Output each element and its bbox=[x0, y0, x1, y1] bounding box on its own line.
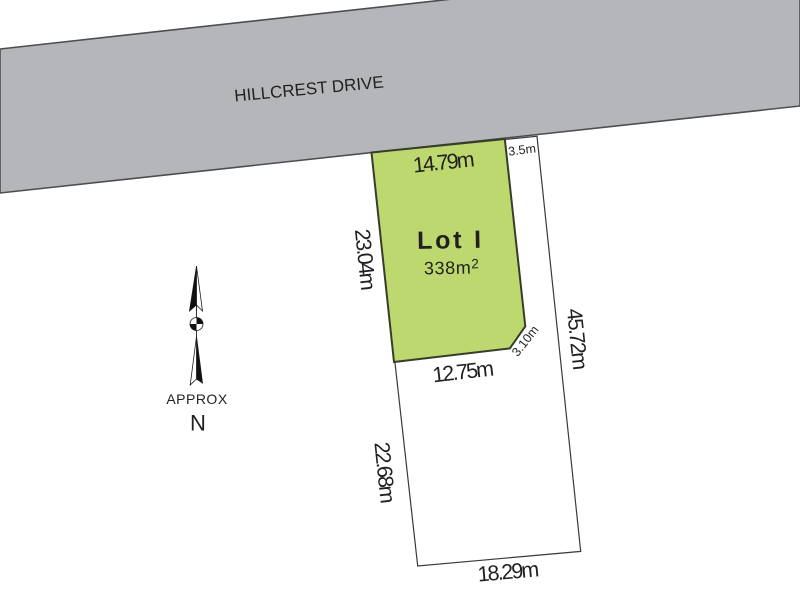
svg-text:N: N bbox=[190, 411, 206, 436]
svg-text:338m2: 338m2 bbox=[424, 256, 480, 278]
svg-text:Lot I: Lot I bbox=[417, 226, 484, 255]
svg-text:APPROX: APPROX bbox=[166, 391, 228, 407]
